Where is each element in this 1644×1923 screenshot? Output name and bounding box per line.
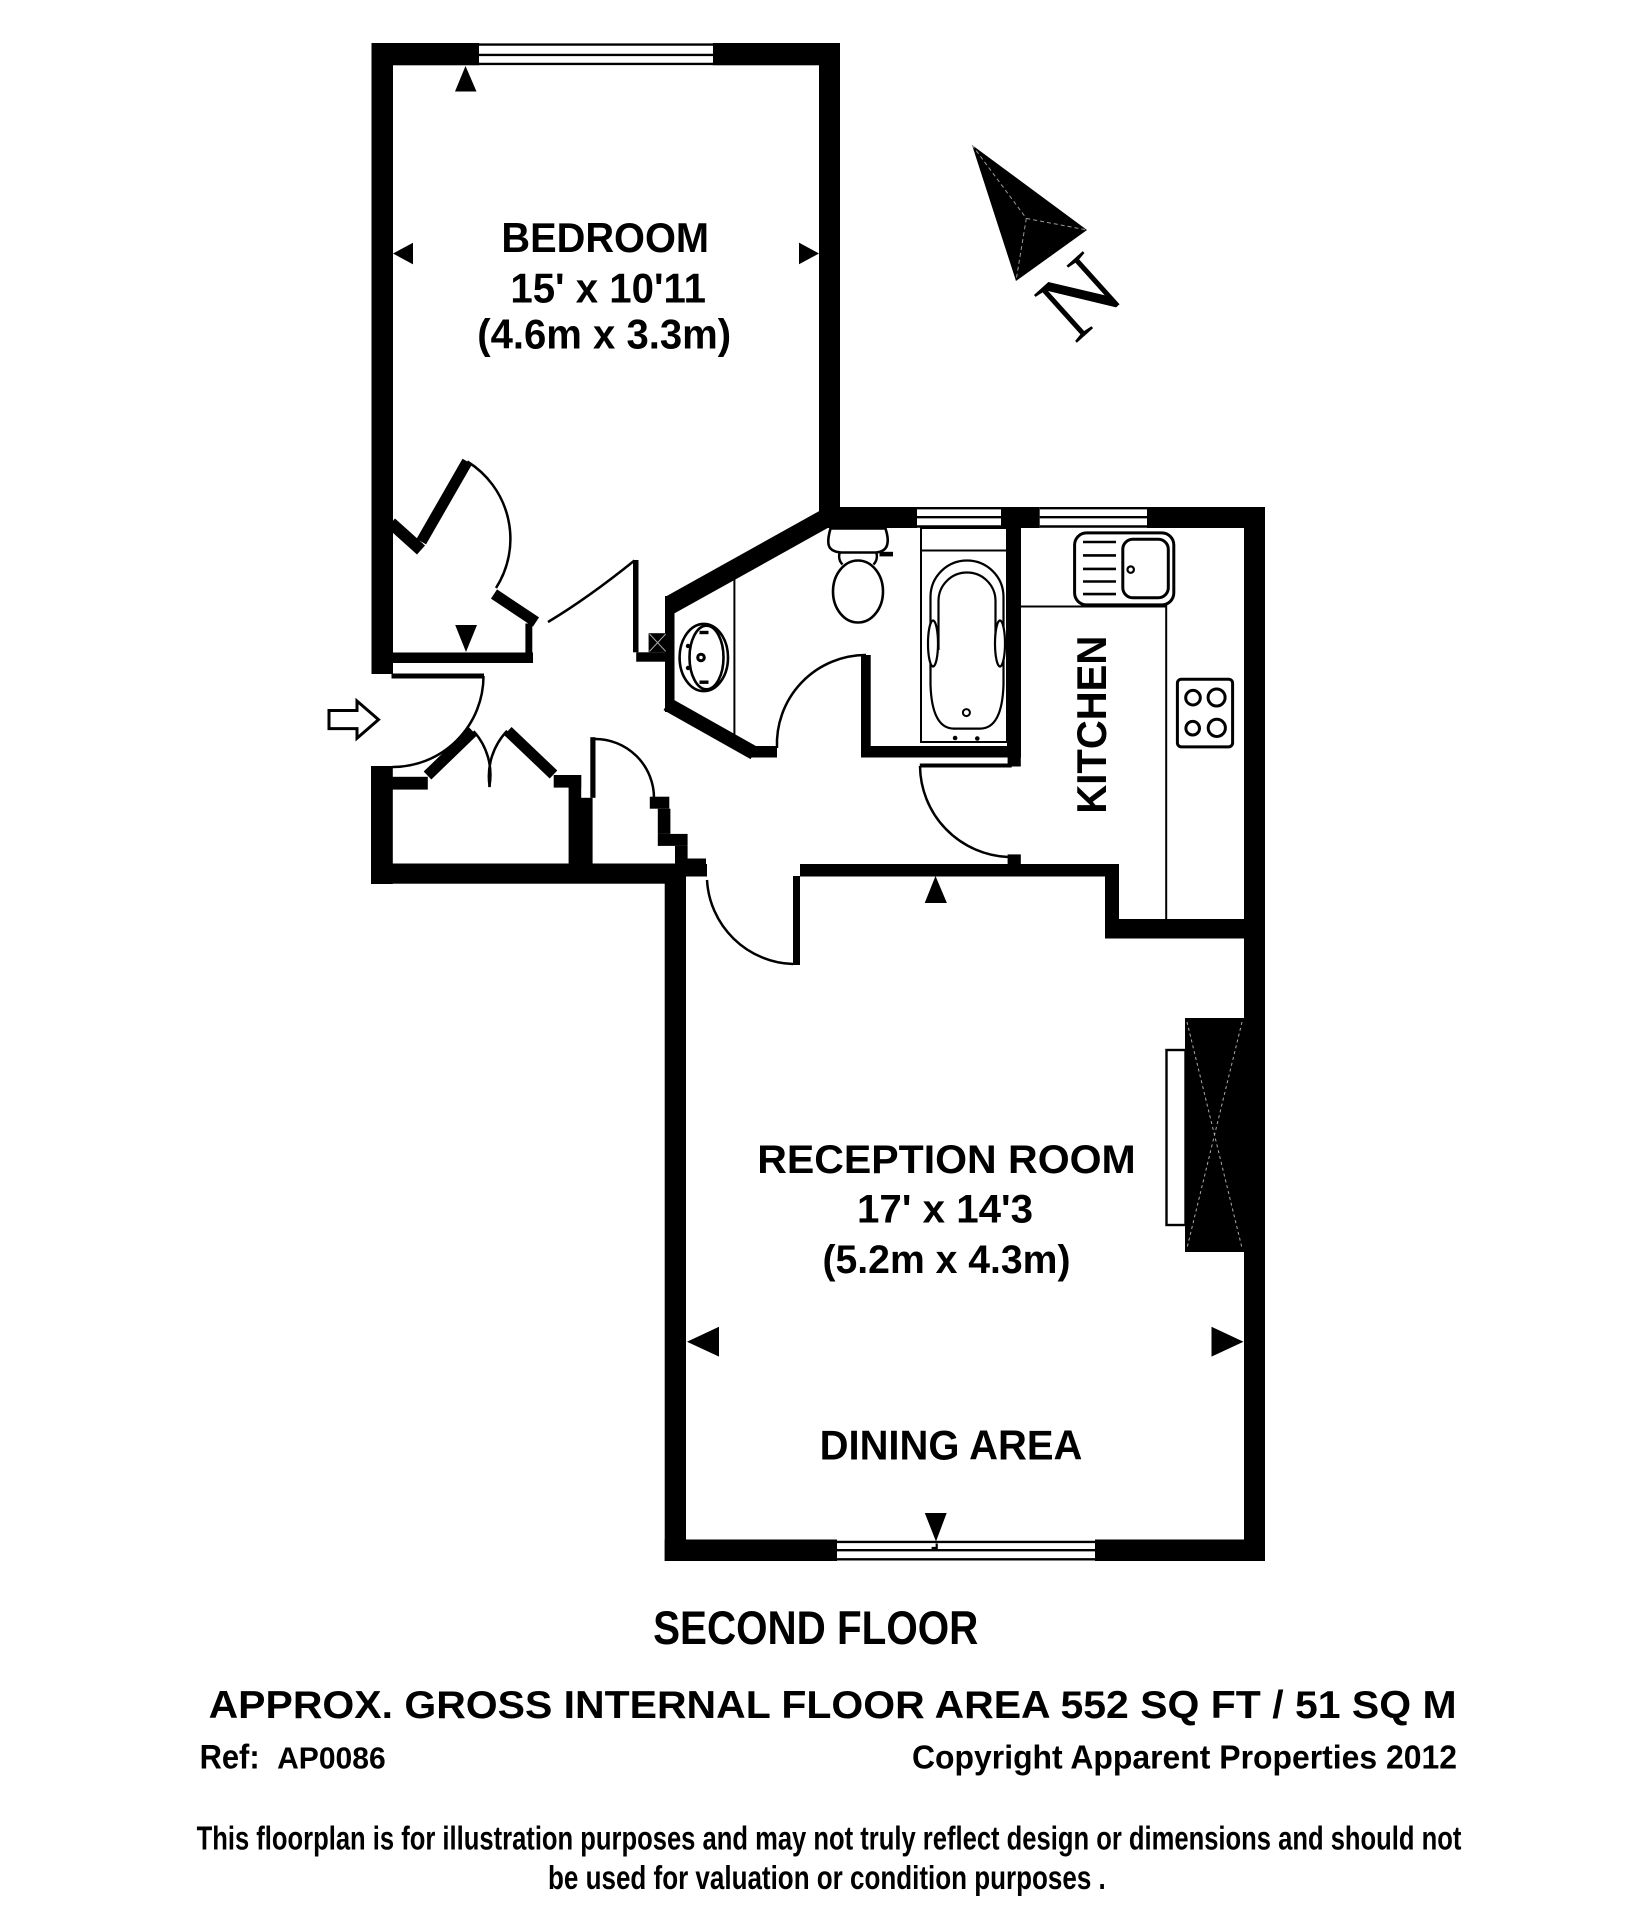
svg-text:17' x 14'3: 17' x 14'3 (857, 1188, 1033, 1232)
svg-text:RECEPTION ROOM: RECEPTION ROOM (757, 1138, 1135, 1182)
svg-text:15' x 10'11: 15' x 10'11 (510, 264, 706, 311)
svg-text:DINING AREA: DINING AREA (820, 1421, 1083, 1468)
svg-text:Copyright Apparent Properties: Copyright Apparent Properties 2012 (912, 1740, 1457, 1777)
svg-text:This floorplan is for illustra: This floorplan is for illustration purpo… (197, 1820, 1462, 1857)
svg-text:AP0086: AP0086 (277, 1742, 386, 1776)
svg-text:KITCHEN: KITCHEN (1068, 636, 1115, 814)
svg-text:(4.6m x 3.3m): (4.6m x 3.3m) (477, 311, 731, 358)
svg-text:Ref:: Ref: (200, 1739, 260, 1777)
svg-text:be used for valuation or condi: be used for valuation or condition purpo… (548, 1859, 1106, 1896)
svg-text:SECOND FLOOR: SECOND FLOOR (653, 1601, 978, 1654)
svg-text:BEDROOM: BEDROOM (501, 214, 709, 261)
svg-text:(5.2m x 4.3m): (5.2m x 4.3m) (823, 1238, 1071, 1282)
svg-text:APPROX. GROSS INTERNAL FLOOR A: APPROX. GROSS INTERNAL FLOOR AREA 552 SQ… (209, 1684, 1457, 1727)
